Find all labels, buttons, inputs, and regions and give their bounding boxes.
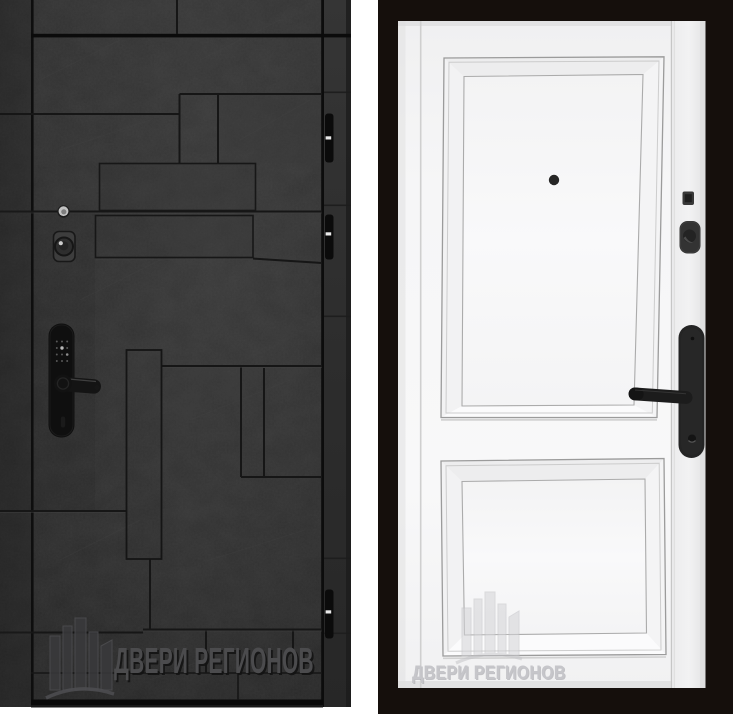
svg-text:ДВЕРИ РЕГИОНОВ: ДВЕРИ РЕГИОНОВ (412, 662, 566, 684)
svg-text:ДВЕРИ РЕГИОНОВ: ДВЕРИ РЕГИОНОВ (114, 641, 314, 681)
